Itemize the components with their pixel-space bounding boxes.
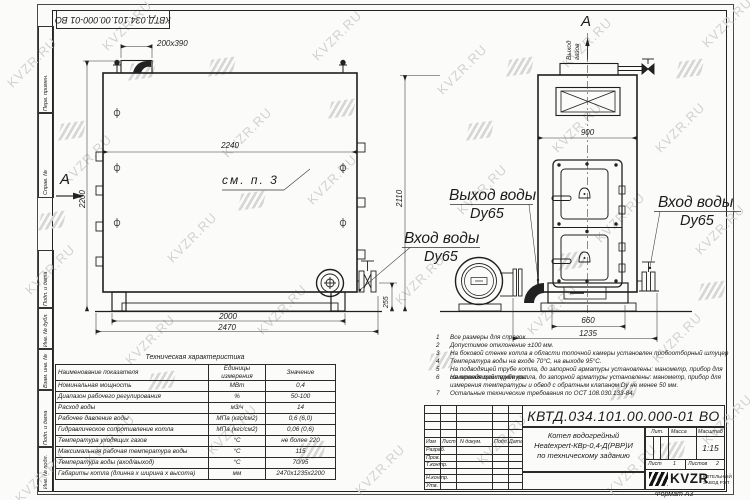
col-list: Лист — [442, 439, 456, 445]
water-out-dn: Dy65 — [470, 206, 504, 222]
col-header-units: Единицы измерения — [209, 365, 266, 381]
col-header-name: Наименование показателя — [56, 365, 209, 381]
dim-900: 900 — [570, 128, 605, 137]
note-item: 6На отводящей трубе котла, до запорной а… — [450, 374, 730, 390]
dim-660: 660 — [570, 316, 606, 325]
product-name-1: Котел водогрейный — [523, 431, 644, 440]
margin-cell-vzam-inv: Взам. инв. № — [38, 348, 54, 391]
col-header-value: Значение — [266, 365, 336, 381]
table-row: Рабочее давление водыМПа (кгс/см2)0,6 (6… — [56, 414, 336, 425]
note-item: 4Температура воды на входе 70°С, на выхо… — [450, 358, 735, 366]
note-item: 3На боковой стенке котла в области топоч… — [450, 350, 735, 358]
row-nkontr: Н.контр. — [426, 475, 448, 481]
margin-cell-sprav: Справ. № — [38, 112, 54, 198]
title-block-designation: КВТД.034.101.00.000-01 ВО — [524, 408, 723, 424]
row-prov: Пров. — [426, 455, 440, 461]
water-in-right-label: Вход воды — [658, 194, 733, 212]
note-item: 7Остальные технические требования по ОСТ… — [450, 390, 735, 398]
front-view — [440, 33, 692, 318]
table-row: Температура уходящих газов°Сне более 220 — [56, 436, 336, 447]
top-stamp-number: КВТД.034.101.00.000-01 ВО — [55, 15, 171, 25]
product-name-3: по техническому заданию — [523, 451, 644, 460]
table-row: Расход водым3/ч14 — [56, 403, 336, 414]
lit-label: Лит. — [651, 429, 663, 435]
row-tkontr: Т.контр. — [426, 462, 447, 468]
col-izm: Изм — [426, 439, 436, 445]
top-stamp-box: КВТД.034.101.00.000-01 ВО — [56, 10, 170, 29]
product-name-2: Heatexpert-КВр-0,4-Д(РВР)И — [523, 441, 644, 450]
sheets-label: Листов — [688, 461, 707, 467]
row-utv: Утв. — [426, 483, 438, 489]
dim-255: 255 — [383, 296, 390, 308]
tech-characteristics-table: Наименование показателя Единицы измерени… — [55, 364, 336, 480]
table-row: Номинальная мощностьМВт0,4 — [56, 381, 336, 392]
dim-2110: 2110 — [395, 190, 404, 207]
sheets-value: 2 — [716, 461, 719, 467]
dim-2240: 2240 — [210, 141, 250, 150]
see-note-label: см. п. 3 — [222, 173, 279, 187]
note-item: 2Допустимое отклонение ±100 мм. — [450, 342, 735, 350]
table-header-row: Наименование показателя Единицы измерени… — [56, 365, 336, 381]
col-data: Дата — [509, 439, 523, 445]
scale-label: Масштаб — [698, 429, 723, 435]
gas-out-label-1: Выход — [566, 40, 573, 60]
table-row: Габариты котла (длинна х ширина х высота… — [56, 469, 336, 480]
kvzr-logo-icon — [649, 472, 668, 486]
margin-cell-podp-data-1: Подп. и дата — [38, 250, 54, 309]
note-item: 1Все размеры для справок — [450, 334, 735, 342]
dim-2470: 2470 — [207, 323, 247, 332]
margin-cell-podp-data-2: Подп. и дата — [38, 389, 54, 448]
format-label: Формат А3 — [655, 491, 693, 498]
sheet-label: Лист — [648, 461, 662, 467]
logo-caption-2: ЗАВОД РЭП — [703, 480, 729, 485]
tech-table-title: Техническая характеристика — [120, 354, 270, 361]
col-ndokum: N докум. — [460, 439, 481, 445]
table-row: Диапазон рабочего регулирования%50-100 — [56, 392, 336, 403]
gas-out-label-2: газов — [574, 43, 581, 60]
section-letter-top: A — [581, 13, 591, 30]
water-in-right-dn: Dy65 — [680, 213, 714, 229]
logo-caption-1: КОТЕЛЬНЫЙ — [703, 474, 732, 479]
water-in-left-label: Вход воды — [404, 230, 479, 248]
table-row: Максимальная рабочая температура воды°С1… — [56, 447, 336, 458]
margin-cell-inv-dubl: Инв. № дубл. — [38, 307, 54, 350]
section-letter-left: A — [60, 171, 70, 188]
scale-value: 1:15 — [697, 443, 724, 453]
col-podp: Подп. — [494, 439, 508, 445]
margin-cell-inv-podl: Инв. № подл. — [38, 446, 54, 492]
dim-2200: 2200 — [78, 190, 87, 208]
row-razrab: Разраб. — [426, 447, 445, 453]
table-row: Гидравлическое сопротивление котлаМПа (к… — [56, 425, 336, 436]
dim-flue: 200x390 — [157, 39, 188, 48]
table-row: Температура воды (вход/выход)°С70/95 — [56, 458, 336, 469]
margin-cell-perv-primen: Перв. примен. — [38, 26, 54, 114]
sheet-value: 1 — [673, 461, 676, 467]
mass-label: Масса — [671, 429, 687, 435]
water-out-label: Выход воды — [449, 187, 536, 205]
water-in-left-dn: Dy65 — [424, 249, 458, 265]
dim-2000: 2000 — [208, 312, 248, 321]
drawing-sheet: KVZR.RUKVZR.RUKVZR.RUKVZR.RUKVZR.RUKVZR.… — [0, 0, 750, 500]
